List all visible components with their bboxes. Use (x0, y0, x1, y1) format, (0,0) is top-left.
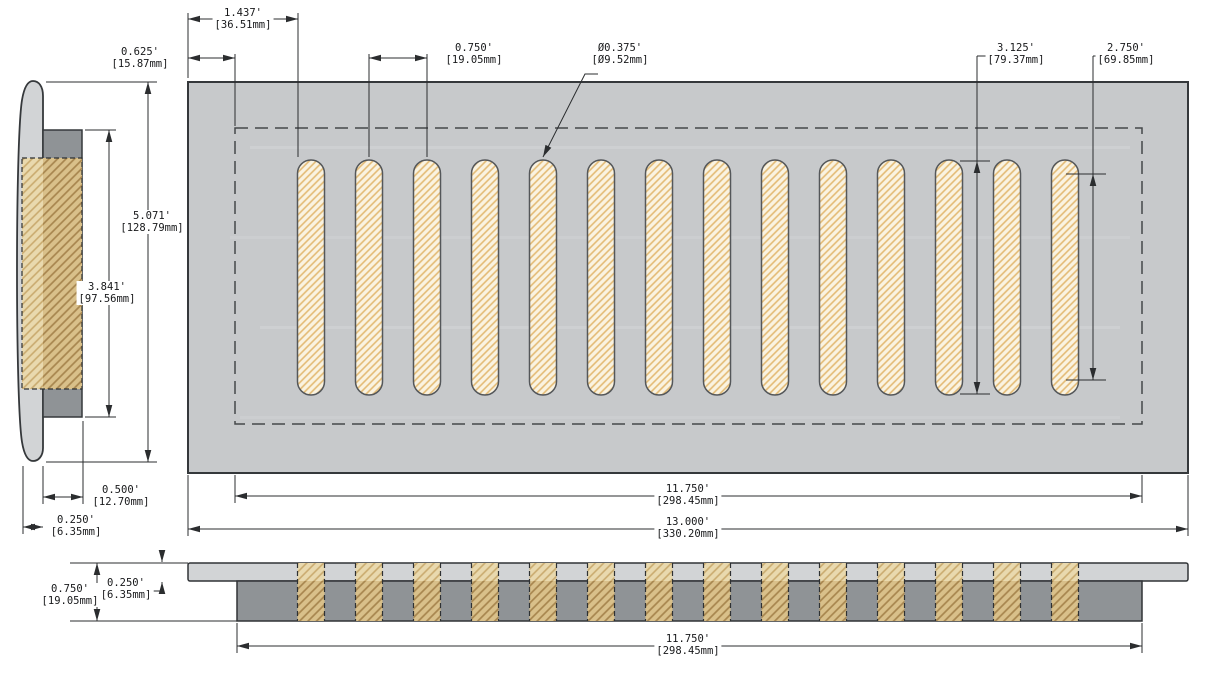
dim-label-faceplate-thickness: 0.250'[6.35mm] (49, 514, 104, 538)
slot-5 (530, 160, 557, 395)
front-slot-3 (414, 563, 441, 581)
slot-14 (1052, 160, 1079, 395)
front-slot-8 (704, 563, 731, 581)
front-slot-2 (356, 563, 383, 581)
front-slot-12 (936, 563, 963, 581)
slot-7 (646, 160, 673, 395)
dim-label-slot-straight: 2.750'[69.85mm] (1096, 42, 1157, 66)
front-slot-11 (878, 563, 905, 581)
front-slot-13 (994, 563, 1021, 581)
front-slot-7 (646, 581, 673, 621)
front-slot-14 (1052, 563, 1079, 581)
dim-label-first-slot-offset: 1.437'[36.51mm] (213, 7, 274, 31)
dim-label-flange-inset: 0.625'[15.87mm] (110, 46, 171, 70)
slot-4 (472, 160, 499, 395)
front-slot-2 (356, 581, 383, 621)
faceplate-plan-outline (188, 82, 1188, 473)
dim-label-duct-width: 11.750'[298.45mm] (654, 483, 721, 507)
slot-3 (414, 160, 441, 395)
front-slot-8 (704, 581, 731, 621)
dim-label-profile-depth: 0.750'[19.05mm] (40, 583, 101, 607)
dim-label-duct-depth: 0.500'[12.70mm] (91, 484, 152, 508)
front-slot-5 (530, 581, 557, 621)
dim-label-slot-dia: Ø0.375'[Ø9.52mm] (590, 42, 651, 66)
slot-11 (878, 160, 905, 395)
side-slot-zone-back (43, 158, 82, 389)
front-slot-9 (762, 563, 789, 581)
slot-6 (588, 160, 615, 395)
front-slot-3 (414, 581, 441, 621)
dim-label-faceplate-height: 5.071'[128.79mm] (118, 210, 185, 234)
slot-10 (820, 160, 847, 395)
front-slot-11 (878, 581, 905, 621)
front-slot-12 (936, 581, 963, 621)
front-slot-7 (646, 563, 673, 581)
drawing-canvas: 1.437'[36.51mm] 0.625'[15.87mm] 0.750'[1… (0, 0, 1214, 673)
dim-label-duct-height: 3.841'[97.56mm] (77, 281, 138, 305)
front-slot-1 (298, 563, 325, 581)
slot-13 (994, 160, 1021, 395)
front-slot-4 (472, 563, 499, 581)
slot-8 (704, 160, 731, 395)
dim-label-slot-length: 3.125'[79.37mm] (986, 42, 1047, 66)
dim-label-plate-width: 13.000'[330.20mm] (654, 516, 721, 540)
front-slot-14 (1052, 581, 1079, 621)
slot-9 (762, 160, 789, 395)
front-slot-13 (994, 581, 1021, 621)
front-slot-1 (298, 581, 325, 621)
faceplate-front-profile (188, 563, 1188, 581)
front-slot-10 (820, 581, 847, 621)
dim-label-profile-duct-width: 11.750'[298.45mm] (654, 633, 721, 657)
front-slot-6 (588, 563, 615, 581)
slot-12 (936, 160, 963, 395)
slot-1 (298, 160, 325, 395)
front-slot-6 (588, 581, 615, 621)
front-slot-9 (762, 581, 789, 621)
side-slot-zone-front (22, 158, 43, 389)
dim-label-slot-pitch: 0.750'[19.05mm] (444, 42, 505, 66)
slot-2 (356, 160, 383, 395)
front-slot-5 (530, 563, 557, 581)
cad-geometry (0, 0, 1214, 673)
dim-label-profile-plate-thickness: 0.250'[6.35mm] (99, 577, 154, 601)
front-slot-10 (820, 563, 847, 581)
front-slot-4 (472, 581, 499, 621)
